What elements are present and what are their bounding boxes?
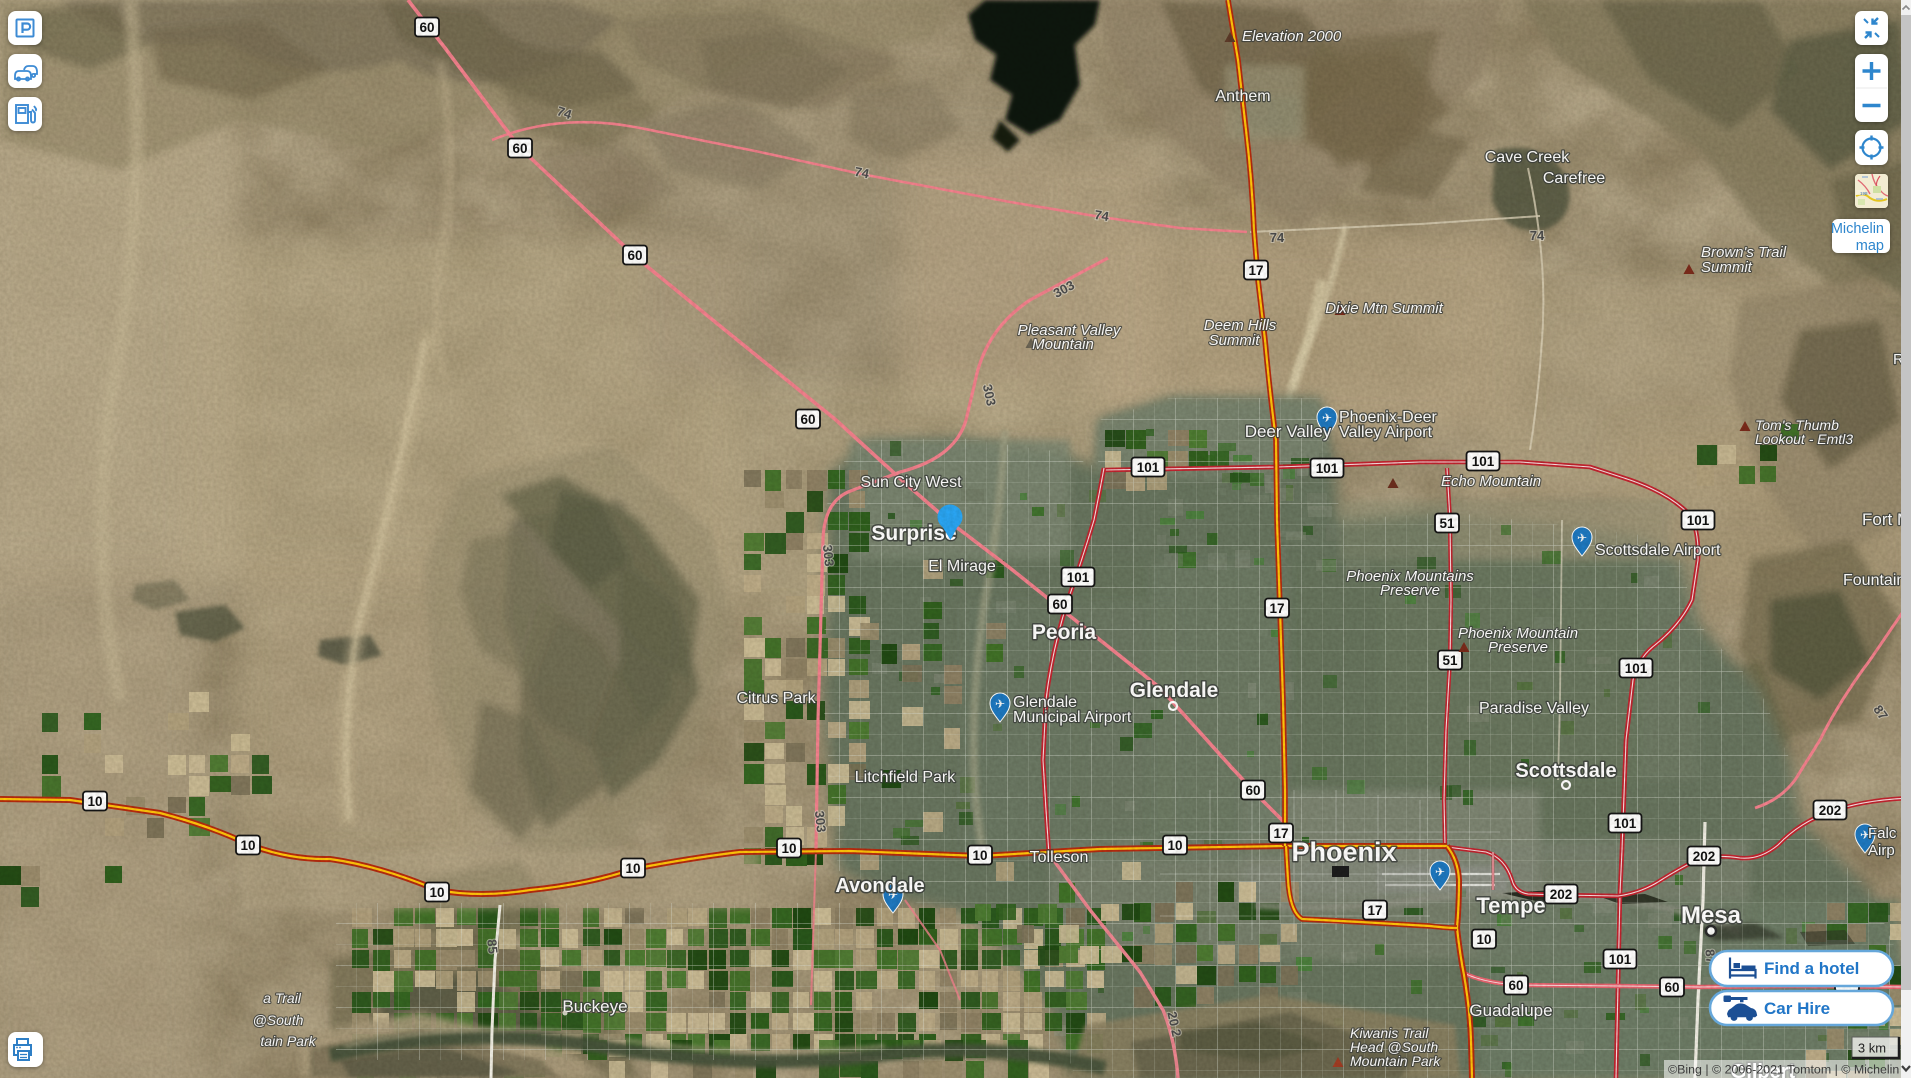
svg-text:Car Hire: Car Hire [1764, 999, 1830, 1018]
svg-text:Find a hotel: Find a hotel [1764, 959, 1859, 978]
svg-text:3 km: 3 km [1858, 1041, 1886, 1056]
svg-text:198: 198 [1860, 191, 1868, 196]
svg-text:Michelin: Michelin [1831, 221, 1884, 237]
svg-text:©Bing | © 2006-2021 Tomtom | ©: ©Bing | © 2006-2021 Tomtom | © Michelin [1668, 1063, 1899, 1077]
svg-text:map: map [1856, 238, 1884, 254]
